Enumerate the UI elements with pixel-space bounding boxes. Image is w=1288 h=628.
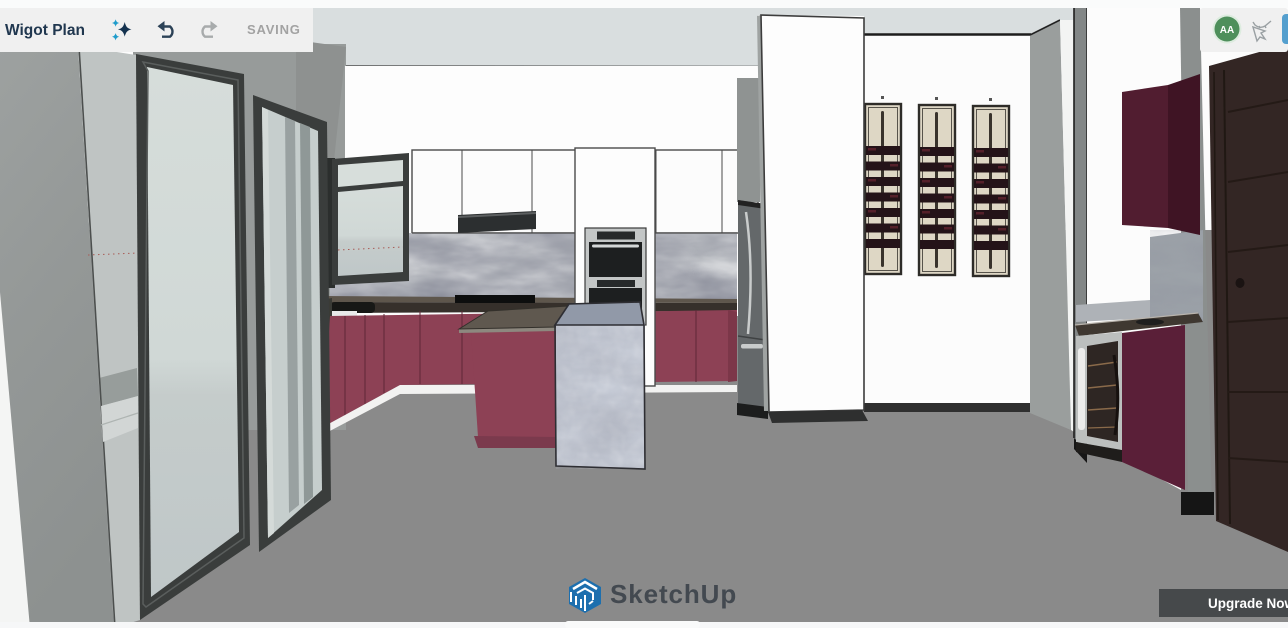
svg-text:AA: AA xyxy=(1220,25,1234,36)
svg-text:Upgrade Now: Upgrade Now xyxy=(1208,596,1288,611)
svg-text:SAVING: SAVING xyxy=(247,22,301,37)
svg-text:SketchUp: SketchUp xyxy=(610,579,737,609)
svg-text:Wigot Plan: Wigot Plan xyxy=(5,22,85,39)
